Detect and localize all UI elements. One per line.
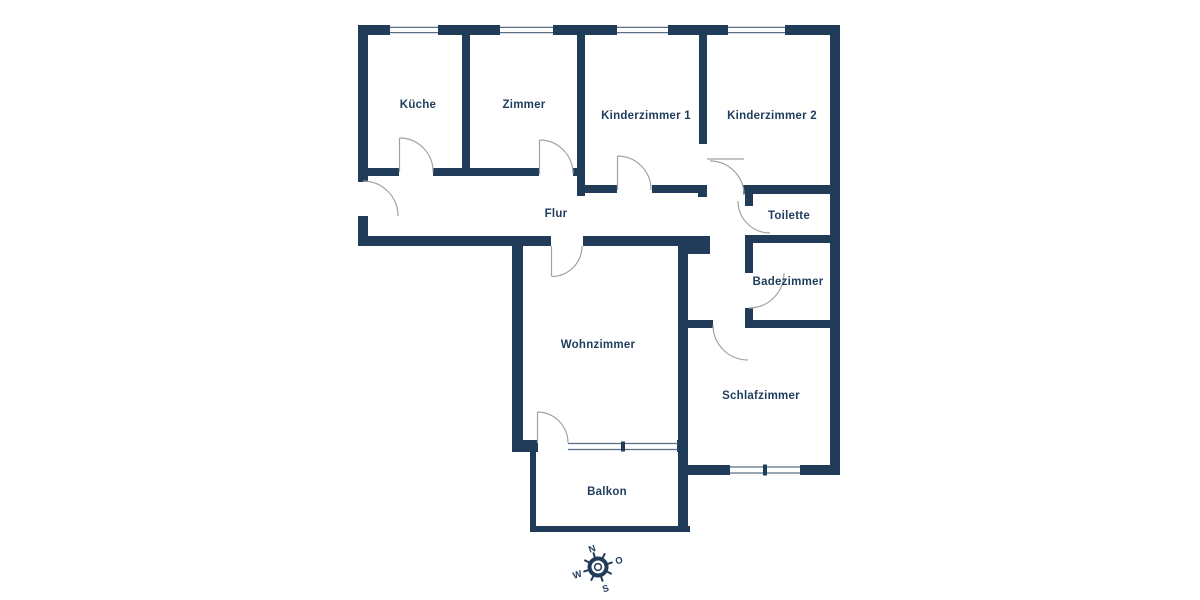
compass-label-n: N xyxy=(587,543,597,556)
room-label-badezimmer: Badezimmer xyxy=(753,276,824,288)
wall-segment xyxy=(530,448,536,532)
wall-segment xyxy=(745,235,753,273)
wall-segment xyxy=(462,35,470,176)
door-zimmer xyxy=(540,140,574,174)
wall-segment xyxy=(688,465,730,475)
room-label-flur: Flur xyxy=(545,208,568,220)
wall-segment xyxy=(358,25,368,182)
wall-segment xyxy=(830,25,840,475)
door-kinderzimmer-1 xyxy=(618,156,652,190)
wall-segment xyxy=(553,25,617,35)
wall-segment xyxy=(585,185,617,193)
room-label-balkon: Balkon xyxy=(587,486,627,498)
room-label-toilette: Toilette xyxy=(768,210,810,222)
door-wohnzimmer xyxy=(552,246,583,277)
room-label-kinderzimmer-1: Kinderzimmer 1 xyxy=(601,110,691,122)
floor-plan-page: Küche Zimmer Kinderzimmer 1 Kinderzimmer… xyxy=(0,0,1200,600)
compass-label-w: W xyxy=(572,569,584,582)
door-toilette xyxy=(738,201,770,233)
wall-segment xyxy=(678,246,688,532)
door-entrance xyxy=(363,181,398,216)
wall-segment xyxy=(745,194,753,206)
wall-segment xyxy=(698,185,707,197)
door-kinderzimmer-2 xyxy=(707,159,744,195)
wall-segment xyxy=(745,308,753,328)
room-label-kueche: Küche xyxy=(400,99,436,111)
window-wohnzimmer-balkon xyxy=(568,442,678,452)
room-label-kinderzimmer-2: Kinderzimmer 2 xyxy=(727,110,817,122)
room-label-schlafzimmer: Schlafzimmer xyxy=(722,390,800,402)
wall-segment xyxy=(668,25,728,35)
floor-plan: Küche Zimmer Kinderzimmer 1 Kinderzimmer… xyxy=(0,0,1200,600)
compass-label-o: O xyxy=(614,555,624,568)
wall-segment xyxy=(530,526,690,532)
compass-icon xyxy=(580,549,617,586)
door-balkon xyxy=(538,412,569,443)
doors xyxy=(363,138,784,443)
wall-segment xyxy=(743,185,840,194)
wall-segment xyxy=(512,236,523,448)
window-kueche xyxy=(390,27,438,32)
wall-segment xyxy=(753,235,830,243)
window-schlafzimmer xyxy=(730,465,800,476)
room-label-zimmer: Zimmer xyxy=(502,99,545,111)
door-kueche xyxy=(400,138,434,172)
window-kinderzimmer-2 xyxy=(728,27,785,32)
wall-segment xyxy=(368,168,399,176)
compass-rose: N O S W xyxy=(565,536,631,600)
wall-segment xyxy=(573,168,585,176)
window-kinderzimmer-1 xyxy=(617,27,668,32)
door-schlafzimmer xyxy=(713,325,748,360)
wall-segment xyxy=(748,320,830,328)
wall-segment xyxy=(688,320,713,328)
windows xyxy=(390,27,800,475)
compass-label-s: S xyxy=(601,583,610,595)
room-label-wohnzimmer: Wohnzimmer xyxy=(561,339,636,351)
wall-segment xyxy=(438,25,500,35)
wall-segment xyxy=(433,168,539,176)
wall-segment xyxy=(583,236,710,246)
window-zimmer xyxy=(500,27,553,32)
wall-segment xyxy=(699,35,707,144)
